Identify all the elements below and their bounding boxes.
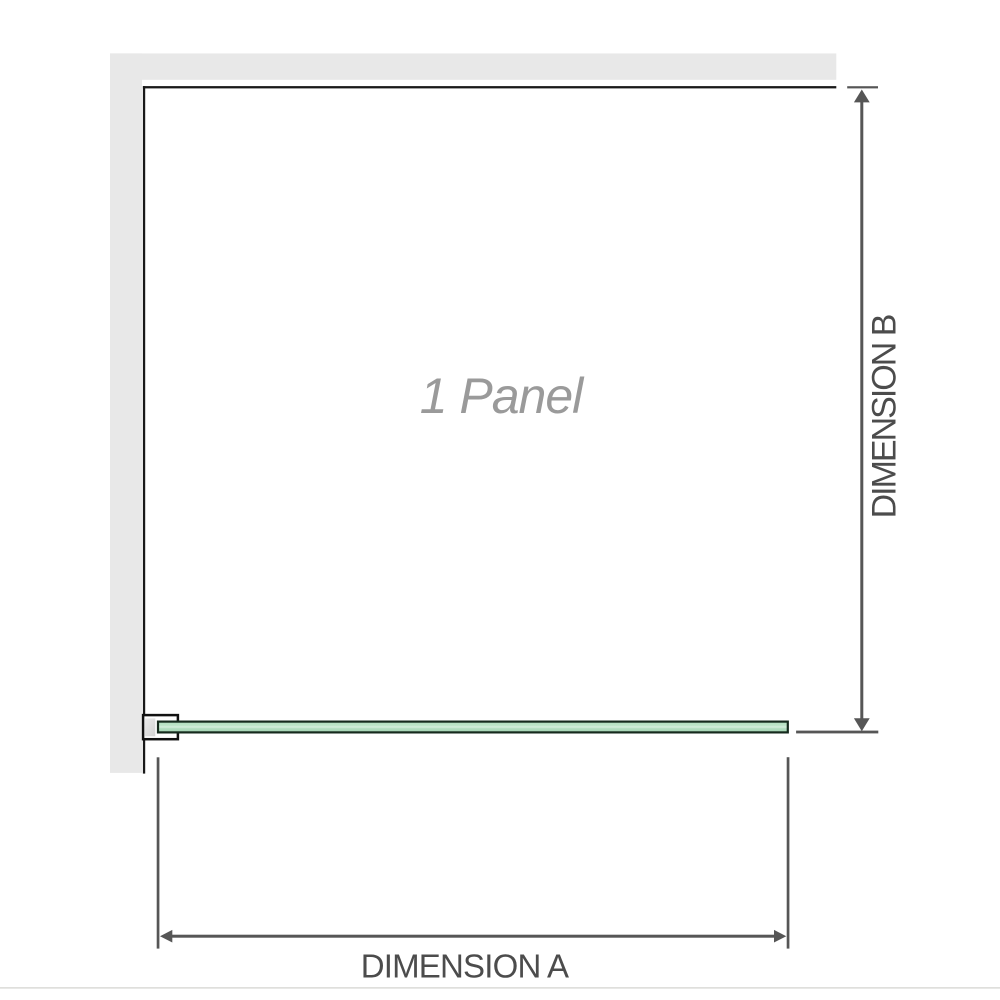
svg-text:DIMENSION A: DIMENSION A bbox=[361, 948, 569, 985]
svg-text:DIMENSION B: DIMENSION B bbox=[865, 315, 903, 518]
svg-text:1 Panel: 1 Panel bbox=[420, 368, 585, 424]
